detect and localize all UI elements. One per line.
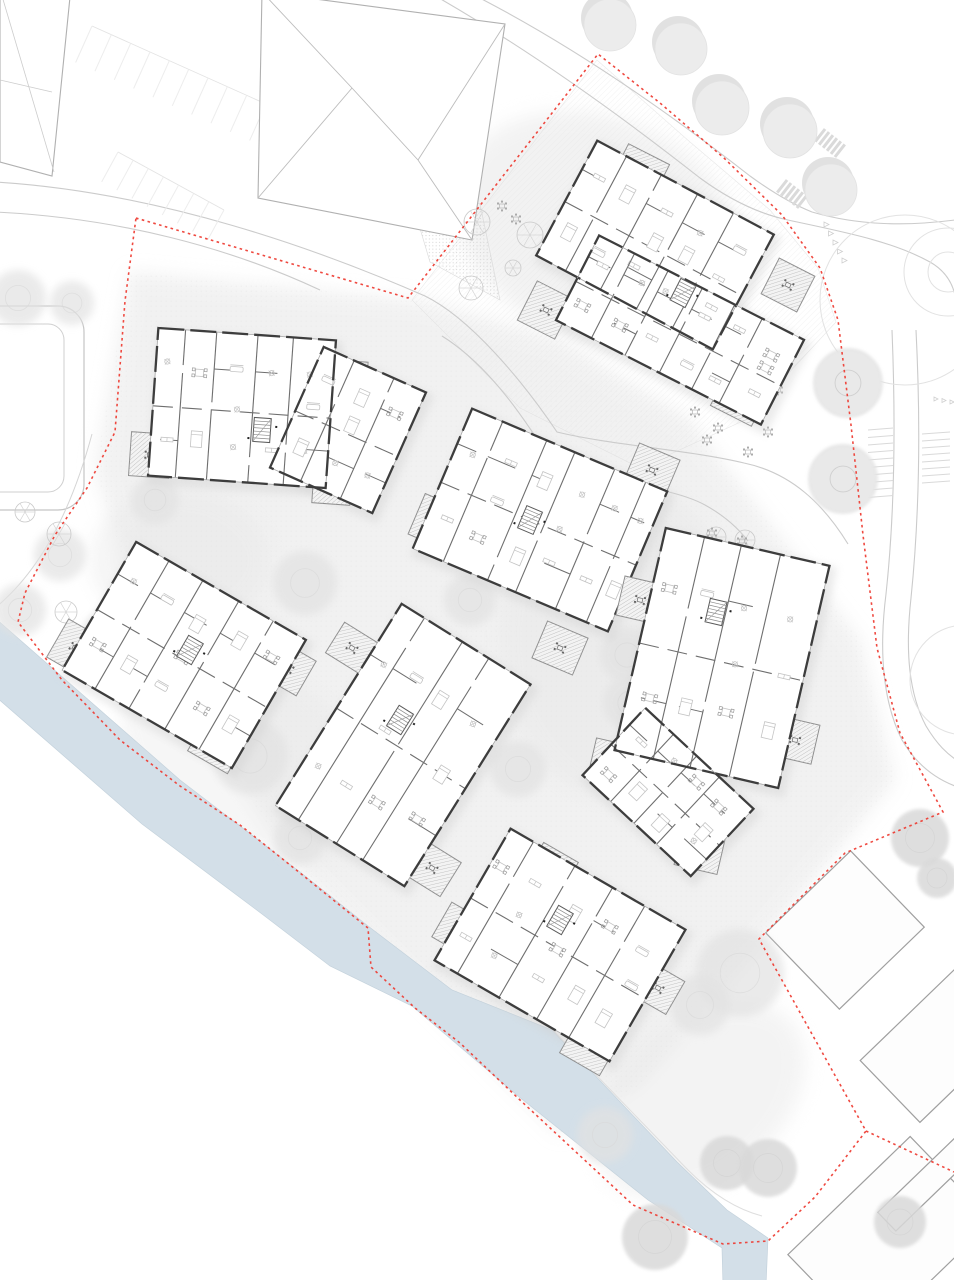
site-plan-page	[0, 0, 954, 1280]
hip-roof-house	[258, 0, 505, 240]
corner-building	[0, 0, 70, 176]
site-plan-canvas	[0, 0, 954, 1280]
